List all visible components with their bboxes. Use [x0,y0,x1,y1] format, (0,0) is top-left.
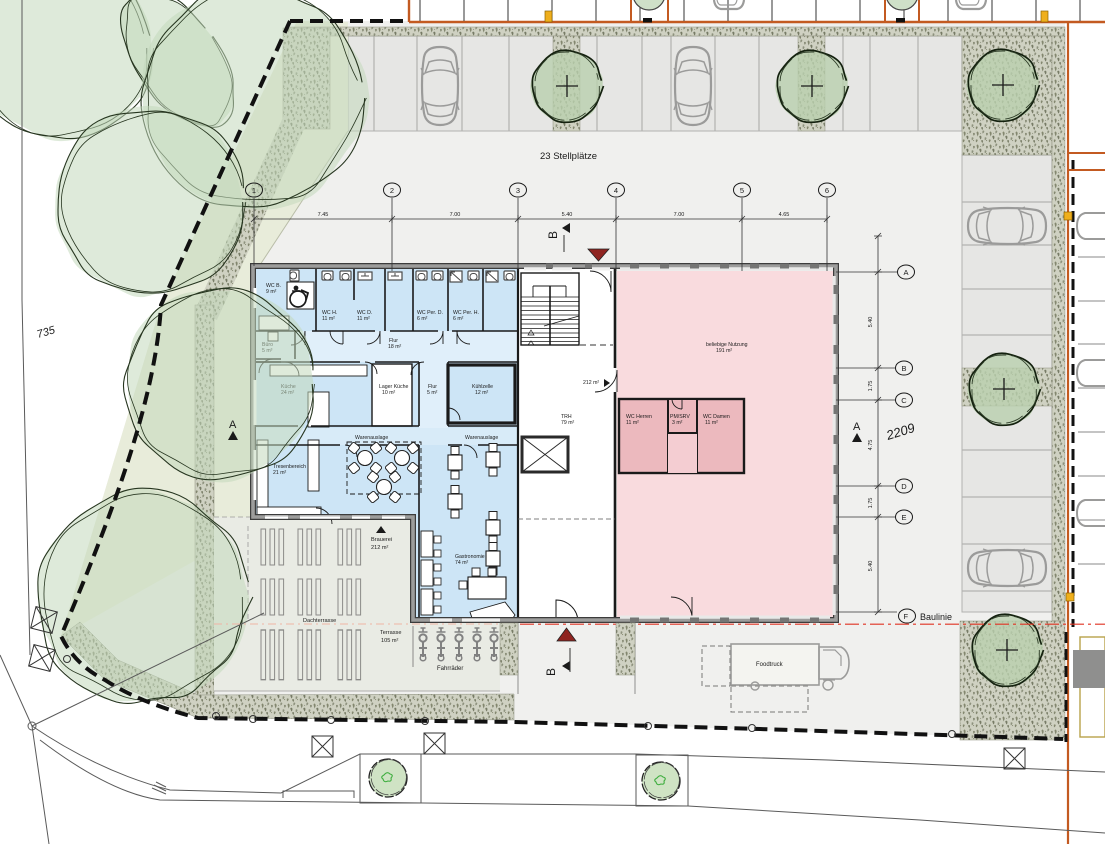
svg-text:105 m²: 105 m² [381,638,399,644]
svg-text:A: A [853,421,861,433]
svg-text:79 m²: 79 m² [561,420,575,426]
svg-text:3 m²: 3 m² [672,420,683,426]
svg-text:7.45: 7.45 [318,212,329,218]
svg-text:212 m²: 212 m² [371,545,389,551]
svg-text:12 m²: 12 m² [475,390,489,396]
svg-text:B: B [546,231,560,239]
svg-text:B: B [901,364,906,373]
svg-text:Warenauslage: Warenauslage [355,435,388,441]
svg-text:212 m²: 212 m² [583,380,599,386]
svg-text:11 m²: 11 m² [626,420,639,426]
svg-text:3: 3 [516,186,520,195]
svg-text:2: 2 [390,186,394,195]
svg-text:Fahrräder: Fahrräder [437,666,463,672]
svg-text:5.40: 5.40 [868,317,874,328]
svg-text:5 m²: 5 m² [427,390,438,396]
svg-text:7.00: 7.00 [450,212,461,218]
svg-text:E: E [901,513,906,522]
svg-text:Terrasse: Terrasse [380,630,401,636]
svg-text:11 m²: 11 m² [705,420,718,426]
svg-text:Baulinie: Baulinie [920,612,952,622]
svg-text:11 m²: 11 m² [357,316,370,322]
svg-text:1.75: 1.75 [868,381,874,392]
svg-text:Foodtruck: Foodtruck [756,662,784,668]
svg-text:5.40: 5.40 [868,561,874,572]
svg-text:21 m²: 21 m² [273,470,287,476]
svg-text:5: 5 [740,186,744,195]
svg-text:C: C [901,396,907,405]
svg-text:9 m²: 9 m² [266,289,277,295]
svg-text:4: 4 [614,186,618,195]
svg-text:6 m²: 6 m² [453,316,464,322]
svg-text:11 m²: 11 m² [322,316,335,322]
svg-text:23 Stellplätze: 23 Stellplätze [540,151,597,162]
svg-text:7.00: 7.00 [674,212,685,218]
svg-text:D: D [901,482,907,491]
svg-text:A: A [903,268,908,277]
svg-text:4.75: 4.75 [868,440,874,451]
svg-text:6: 6 [825,186,829,195]
svg-text:74 m²: 74 m² [455,560,469,566]
svg-text:18 m²: 18 m² [388,344,402,350]
svg-text:A: A [229,419,237,431]
svg-text:191 m²: 191 m² [716,348,732,354]
svg-text:B: B [544,668,558,676]
svg-text:Warenauslage: Warenauslage [465,435,498,441]
svg-text:F: F [904,612,909,621]
svg-text:6 m²: 6 m² [417,316,428,322]
svg-text:1: 1 [252,186,256,195]
svg-text:4.65: 4.65 [779,212,790,218]
svg-text:Dachterrasse: Dachterrasse [303,618,336,624]
svg-text:1.75: 1.75 [868,498,874,509]
svg-text:5.40: 5.40 [562,212,573,218]
svg-text:10 m²: 10 m² [382,390,396,396]
svg-text:Brauerei: Brauerei [371,537,392,543]
